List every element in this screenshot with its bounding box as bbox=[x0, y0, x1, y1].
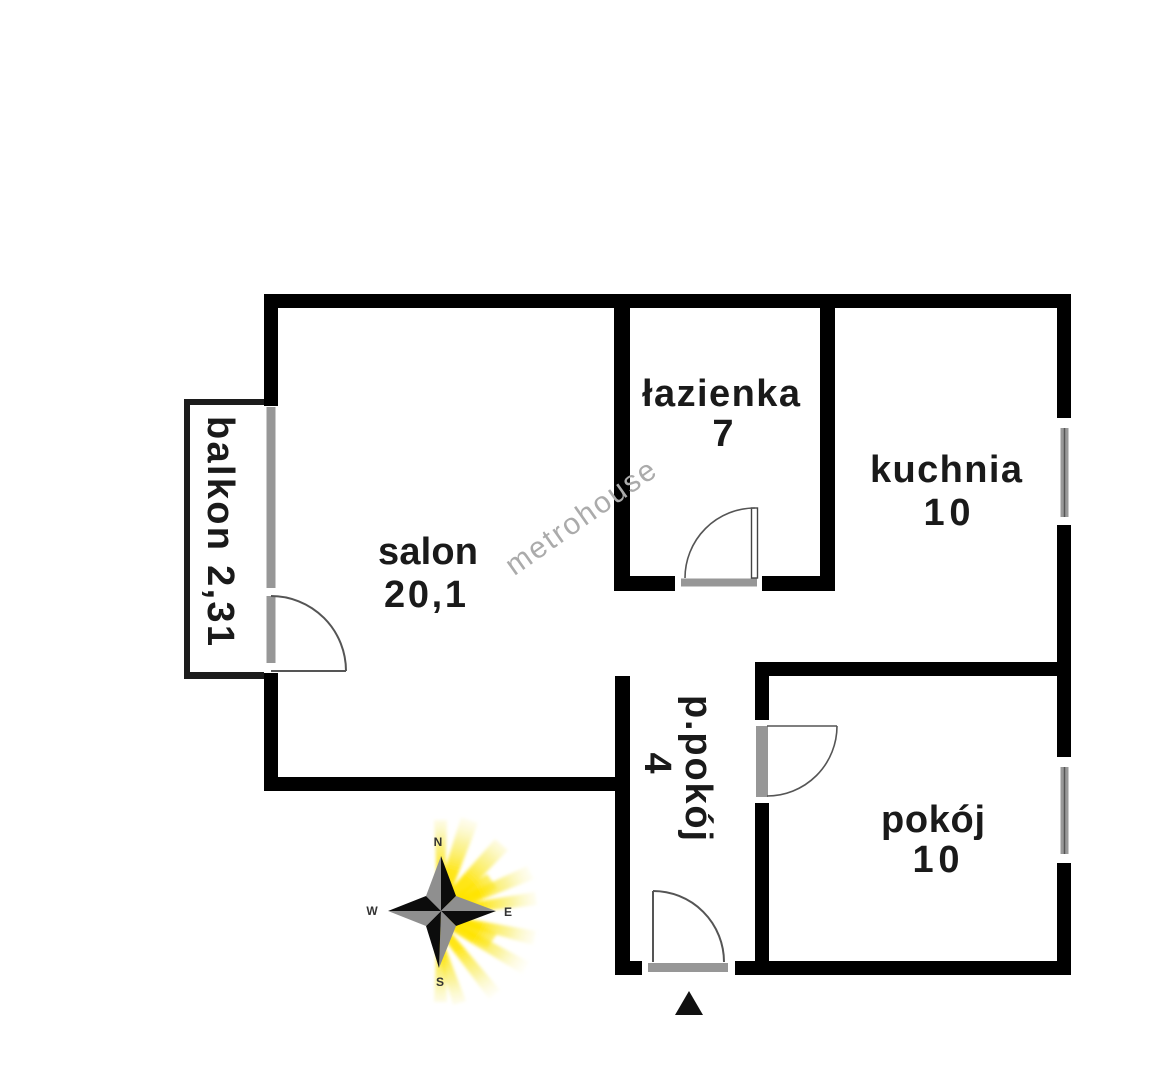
svg-text:kuchnia: kuchnia bbox=[870, 449, 1023, 491]
svg-text:W: W bbox=[366, 904, 378, 918]
svg-text:E: E bbox=[504, 905, 512, 919]
svg-text:łazienka: łazienka bbox=[642, 373, 801, 415]
svg-text:N: N bbox=[434, 835, 443, 849]
svg-text:10: 10 bbox=[913, 839, 960, 881]
svg-text:4: 4 bbox=[636, 752, 678, 773]
svg-text:10: 10 bbox=[924, 492, 971, 534]
svg-text:balkon 2,31: balkon 2,31 bbox=[199, 416, 241, 646]
svg-text:7: 7 bbox=[712, 413, 733, 455]
svg-text:S: S bbox=[436, 975, 444, 989]
svg-text:pokój: pokój bbox=[881, 799, 985, 841]
svg-text:salon: salon bbox=[378, 531, 478, 573]
svg-text:metrohouse: metrohouse bbox=[499, 452, 664, 582]
svg-text:20,1: 20,1 bbox=[384, 574, 466, 616]
svg-text:p.pokój: p.pokój bbox=[677, 695, 719, 841]
